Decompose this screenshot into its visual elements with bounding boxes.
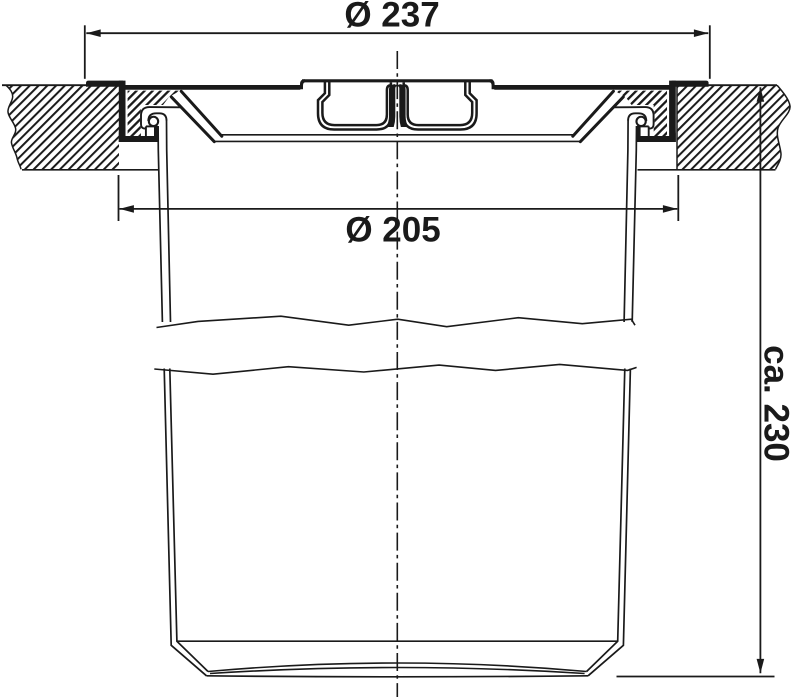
- svg-text:ca. 230: ca. 230: [757, 345, 796, 462]
- svg-text:Ø 237: Ø 237: [344, 0, 439, 35]
- svg-text:Ø 205: Ø 205: [345, 211, 440, 250]
